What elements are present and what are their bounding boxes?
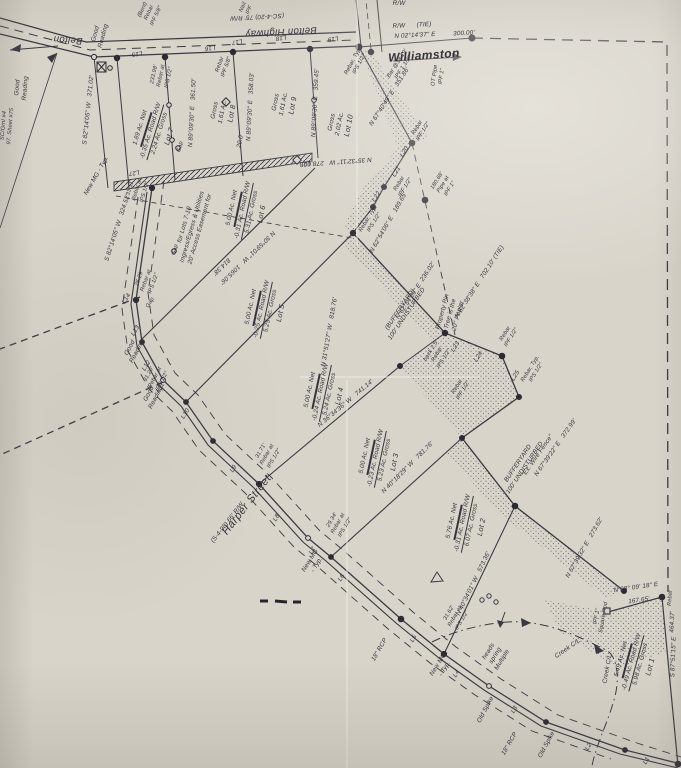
scan-artifact-marks: [260, 601, 301, 602]
segment-L19: L19: [327, 33, 339, 43]
segment-L17: L17: [231, 36, 243, 46]
bearing-se-long: S 87°51'15" E: [669, 636, 679, 677]
plat-map-scan: Belton Belton Highway (SC-4-20) 75' R/W …: [0, 0, 681, 768]
segment-L15: L15: [131, 48, 143, 58]
distance-se-long: 464.37': [669, 611, 678, 633]
segment-L18: L18: [275, 32, 287, 42]
monument-ipf1-ot-pipe: IPF 1"OT Pipe: [430, 64, 447, 87]
segment-L28: L28: [299, 158, 311, 168]
tie-distance: 300.00': [453, 29, 475, 38]
segment-L16: L16: [204, 42, 216, 52]
belton-road-label: Belton: [53, 32, 83, 46]
monument-ips-233: IPS 1/2"Rebar at233.98': [149, 63, 175, 90]
lot-9-block: Lot 9 1.61 Ac. Gross: [270, 90, 300, 119]
note-good-reading-tl: GoodReading: [13, 75, 31, 101]
monument-rebar-corner: Rebar: [667, 590, 675, 606]
lot-8-block: Lot 8 1.61 Ac. Gross: [209, 98, 239, 127]
lot-10-block: Lot 10 2.02 Ac. Gross: [326, 110, 356, 139]
rw-label: R/W: [393, 0, 406, 8]
